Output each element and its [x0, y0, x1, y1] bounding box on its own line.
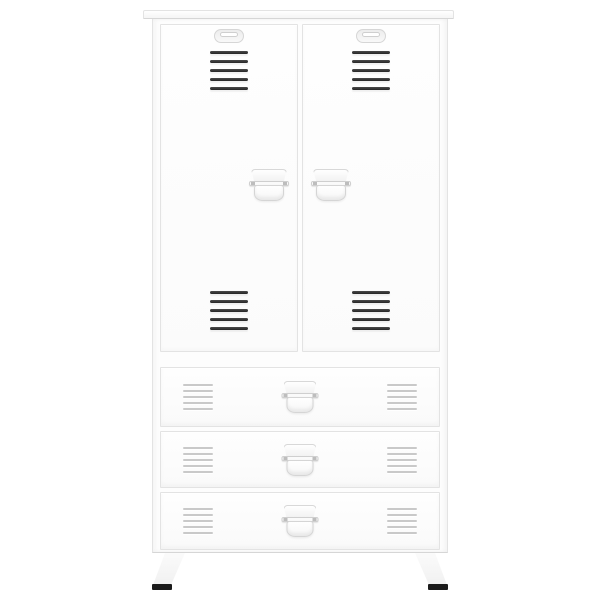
handle-loop: [287, 460, 314, 476]
drawer-section: [160, 367, 440, 550]
handle-loop: [287, 397, 314, 413]
drawer-handle: [282, 505, 319, 538]
vent-slat: [352, 309, 390, 312]
handle-loop: [254, 185, 284, 201]
vent-slat: [183, 514, 213, 516]
vent-slat: [352, 291, 390, 294]
drawer-handle: [282, 381, 319, 414]
vent-slat: [210, 78, 248, 81]
vent-slat: [210, 60, 248, 63]
vent-slat: [183, 520, 213, 522]
cabinet-body: [152, 19, 448, 553]
left-door: [160, 24, 298, 352]
vent-slat: [387, 459, 417, 461]
vent-slat: [183, 402, 213, 404]
vent-slat: [183, 408, 213, 410]
stamped-vent-plate-icon: [356, 29, 386, 43]
vent-slat: [352, 318, 390, 321]
product-photo: [0, 0, 600, 600]
vent-slat: [387, 508, 417, 510]
vent-slat: [183, 459, 213, 461]
vent-slat: [387, 408, 417, 410]
vent-slat: [183, 465, 213, 467]
vent-slat: [210, 51, 248, 54]
vent-slat: [183, 526, 213, 528]
vent-slat: [210, 318, 248, 321]
vent-slat: [387, 447, 417, 449]
vent-slat: [387, 520, 417, 522]
drawer-top: [160, 367, 440, 427]
vent-slat: [387, 465, 417, 467]
vent-slat: [352, 300, 390, 303]
door-bottom-vent-group: [352, 291, 390, 330]
vent-slat: [387, 384, 417, 386]
drawer-bottom: [160, 492, 440, 550]
vent-slat: [352, 60, 390, 63]
vent-slat: [352, 78, 390, 81]
vent-slat: [210, 87, 248, 90]
right-door: [302, 24, 440, 352]
door-section: [160, 24, 440, 352]
stamped-vent-plate-icon: [214, 29, 244, 43]
vent-slat: [183, 390, 213, 392]
vent-slat: [210, 327, 248, 330]
vent-slat: [183, 384, 213, 386]
drawer-middle: [160, 431, 440, 488]
door-bottom-vent-group: [210, 291, 248, 330]
vent-slat: [387, 532, 417, 534]
vent-slat: [387, 390, 417, 392]
vent-slat: [387, 402, 417, 404]
vent-slat: [352, 327, 390, 330]
vent-slat: [387, 526, 417, 528]
drawer-right-vent-group: [387, 384, 417, 410]
vent-slat: [183, 508, 213, 510]
drawer-right-vent-group: [387, 508, 417, 534]
cabinet-top-lid: [143, 10, 454, 19]
vent-slat: [183, 532, 213, 534]
drawer-left-vent-group: [183, 508, 213, 534]
door-top-vent-group: [352, 51, 390, 90]
drawer-left-vent-group: [183, 447, 213, 473]
vent-slat: [183, 453, 213, 455]
black-foot-cap: [428, 584, 448, 590]
vent-slat: [210, 309, 248, 312]
vent-slat: [352, 87, 390, 90]
front-left-leg: [150, 553, 190, 591]
handle-loop: [316, 185, 346, 201]
left-door-handle: [249, 169, 289, 202]
vent-slat: [183, 396, 213, 398]
door-top-vent-group: [210, 51, 248, 90]
drawer-right-vent-group: [387, 447, 417, 473]
vent-slat: [387, 514, 417, 516]
right-door-handle: [311, 169, 351, 202]
handle-loop: [287, 521, 314, 537]
vent-slat: [352, 69, 390, 72]
vent-slat: [210, 291, 248, 294]
vent-slat: [210, 300, 248, 303]
drawer-handle: [282, 444, 319, 477]
vent-slat: [352, 51, 390, 54]
vent-slat: [387, 396, 417, 398]
vent-slat: [183, 447, 213, 449]
vent-slat: [387, 471, 417, 473]
vent-slat: [387, 453, 417, 455]
drawer-left-vent-group: [183, 384, 213, 410]
vent-slat: [210, 69, 248, 72]
vent-slat: [183, 471, 213, 473]
front-right-leg: [410, 553, 450, 591]
black-foot-cap: [152, 584, 172, 590]
